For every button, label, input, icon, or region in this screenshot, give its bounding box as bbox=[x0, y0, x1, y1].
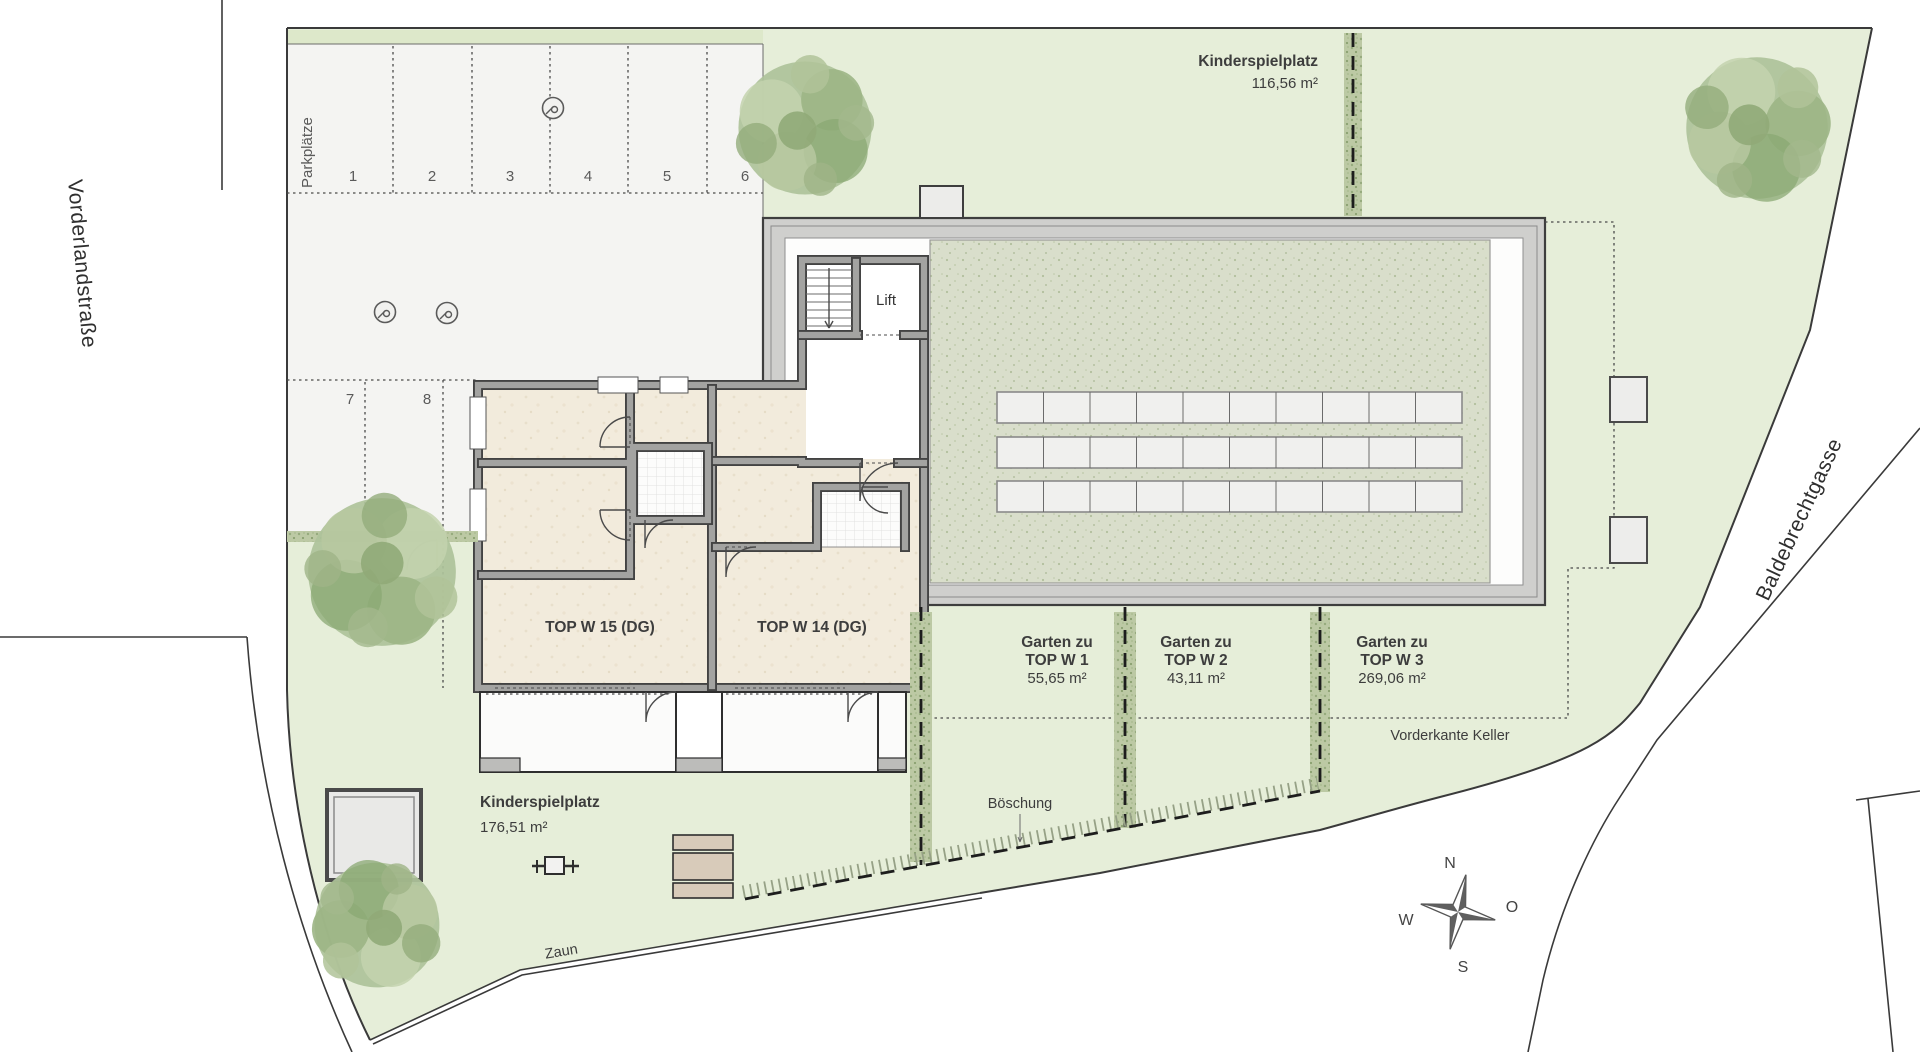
light-well bbox=[1610, 517, 1647, 563]
bathroom-w15 bbox=[633, 447, 708, 520]
compass-west-label: W bbox=[1398, 912, 1414, 929]
svg-text:43,11 m²: 43,11 m² bbox=[1167, 670, 1225, 687]
svg-text:Garten zu: Garten zu bbox=[1021, 634, 1092, 651]
parking-space-8: 8 bbox=[423, 391, 431, 408]
parking-label: Parkplätze bbox=[299, 117, 316, 188]
compass-south-label: S bbox=[1458, 959, 1469, 976]
garden-label-1: Garten zu TOP W 1 55,65 m² bbox=[1021, 634, 1092, 687]
parking-space-5: 5 bbox=[663, 168, 671, 185]
parking-green-strip bbox=[287, 30, 763, 44]
unit-label-w14: TOP W 14 (DG) bbox=[757, 619, 867, 636]
svg-text:Garten zu: Garten zu bbox=[1356, 634, 1427, 651]
parking-space-6: 6 bbox=[741, 168, 749, 185]
basement-edge-label: Vorderkante Keller bbox=[1390, 728, 1509, 744]
neighbor-plot-lines bbox=[1856, 791, 1920, 1052]
slope-label: Böschung bbox=[988, 796, 1053, 812]
street-label-left: Vorderlandstraße bbox=[63, 178, 101, 348]
playground-top-name: Kinderspielplatz bbox=[1198, 53, 1318, 70]
roof-panel-rows bbox=[997, 392, 1462, 512]
parking-space-2: 2 bbox=[428, 168, 436, 185]
parking-space-1: 1 bbox=[349, 168, 357, 185]
svg-text:TOP W 3: TOP W 3 bbox=[1360, 652, 1424, 669]
playground-bottom-area: 176,51 m² bbox=[480, 819, 548, 836]
playground-top-area: 116,56 m² bbox=[1252, 75, 1318, 92]
svg-text:269,06 m²: 269,06 m² bbox=[1358, 670, 1426, 687]
svg-text:Garten zu: Garten zu bbox=[1160, 634, 1231, 651]
playground-bottom-name: Kinderspielplatz bbox=[480, 794, 600, 811]
manhole-icon bbox=[543, 98, 564, 119]
svg-text:55,65 m²: 55,65 m² bbox=[1027, 670, 1086, 687]
site-plan-drawing: Parkplätze 1 2 3 4 5 6 7 8 bbox=[0, 0, 1920, 1052]
garden-label-3: Garten zu TOP W 3 269,06 m² bbox=[1356, 634, 1427, 687]
parking-space-7: 7 bbox=[346, 391, 354, 408]
parking-space-3: 3 bbox=[506, 168, 514, 185]
benches bbox=[673, 835, 733, 898]
manhole-icon bbox=[375, 302, 396, 323]
site-plan-canvas: Parkplätze 1 2 3 4 5 6 7 8 bbox=[0, 0, 1920, 1052]
chimney bbox=[920, 186, 963, 218]
compass-north-label: N bbox=[1444, 855, 1456, 872]
lift-label: Lift bbox=[876, 292, 897, 309]
street-label-right: Baldebrechtgasse bbox=[1752, 435, 1847, 604]
stair-core-floor bbox=[806, 264, 920, 459]
compass-east-label: O bbox=[1506, 899, 1518, 916]
compass-star bbox=[1421, 875, 1495, 949]
svg-text:TOP W 1: TOP W 1 bbox=[1025, 652, 1089, 669]
parking-space-4: 4 bbox=[584, 168, 592, 185]
manhole-icon bbox=[437, 303, 458, 324]
compass-rose: N O S W bbox=[1398, 855, 1518, 976]
light-well bbox=[1610, 377, 1647, 422]
garden-label-2: Garten zu TOP W 2 43,11 m² bbox=[1160, 634, 1231, 687]
svg-text:TOP W 2: TOP W 2 bbox=[1164, 652, 1227, 669]
unit-w15-rooms bbox=[482, 389, 710, 684]
unit-label-w15: TOP W 15 (DG) bbox=[545, 619, 655, 636]
terraces bbox=[480, 692, 906, 772]
